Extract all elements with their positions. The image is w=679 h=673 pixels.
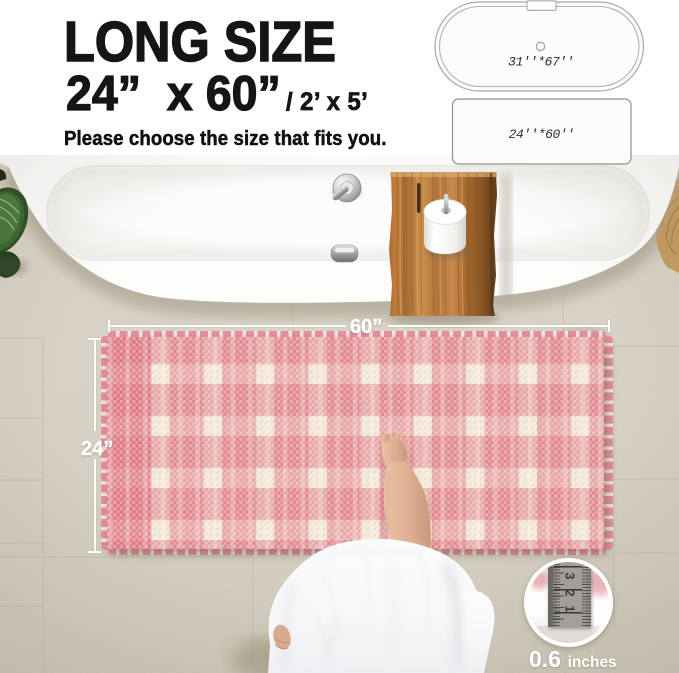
svg-text:24''*60'': 24''*60'': [509, 127, 575, 142]
svg-text:31''*67'': 31''*67'': [508, 55, 574, 70]
